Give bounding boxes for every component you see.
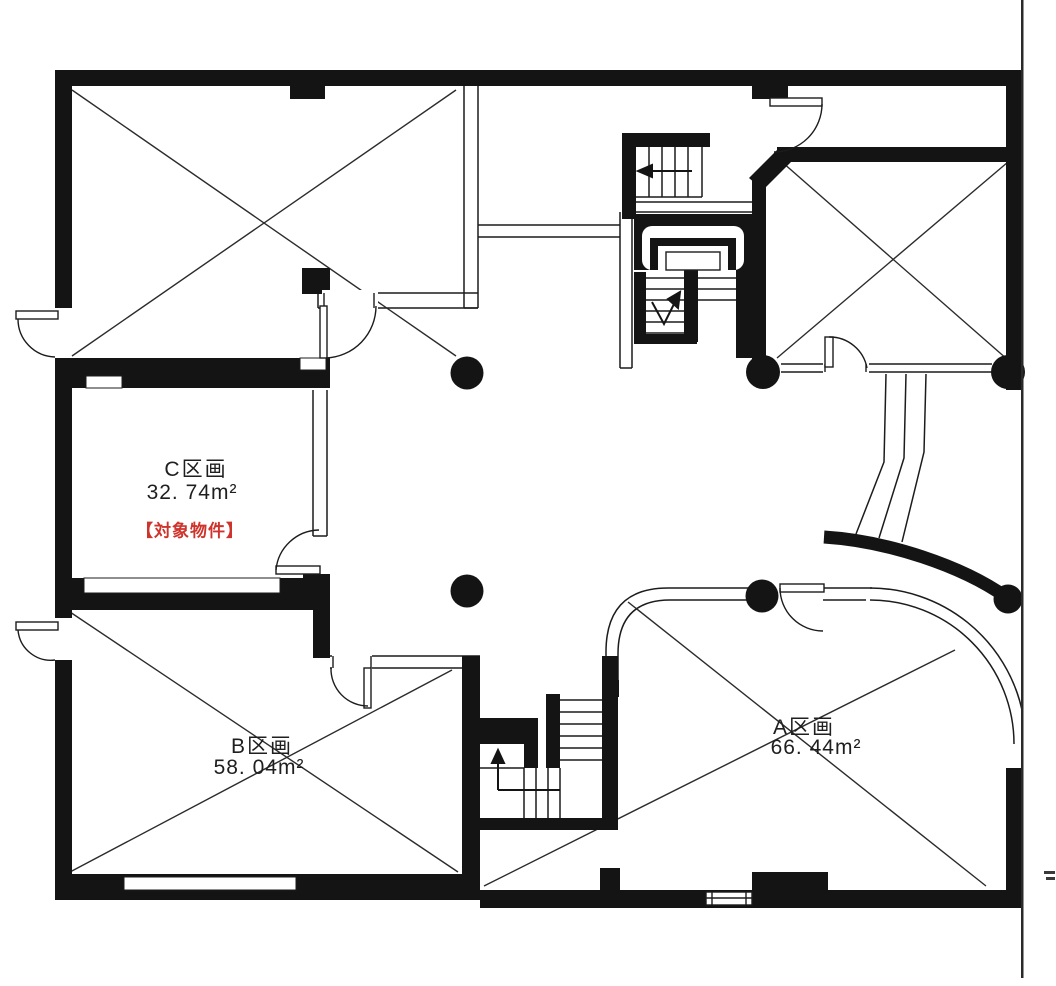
column — [746, 355, 780, 389]
top-stair-arrow-icon — [638, 165, 692, 177]
door-left-lower — [16, 622, 58, 660]
thin-partition-lines — [55, 86, 1022, 818]
sliding-door-bottom — [706, 892, 752, 905]
elevator — [634, 214, 752, 270]
room-c-name-label: C区画 — [164, 453, 227, 483]
room-a-area-label: 66. 44m² — [771, 736, 862, 760]
door-hall-partition — [320, 306, 376, 358]
door-gaps — [322, 290, 869, 905]
door-left-upper — [16, 311, 58, 357]
column — [451, 357, 484, 390]
floor-plan-sheet: C区画 32. 74m² 【対象物件】 B区画 58. 04m² A区画 66.… — [0, 0, 1056, 986]
room-upper-right-cross — [777, 162, 1008, 360]
column — [451, 575, 484, 608]
column — [994, 585, 1023, 614]
room-c-area-label: 32. 74m² — [147, 481, 238, 505]
door-room-a — [780, 584, 824, 631]
room-upper-left-cross — [72, 90, 456, 356]
room-b-area-label: 58. 04m² — [214, 756, 305, 780]
columns — [451, 355, 1026, 614]
door-top-corridor — [770, 98, 822, 152]
wall-window-insets — [84, 358, 326, 890]
clipped-edge-mark — [1042, 868, 1056, 884]
sheet-border-line — [1021, 0, 1024, 978]
column — [991, 355, 1025, 389]
target-property-badge: 【対象物件】 — [136, 517, 244, 542]
door-room-b — [331, 668, 371, 708]
column — [746, 580, 779, 613]
central-stair-arrow-icon — [652, 292, 680, 324]
